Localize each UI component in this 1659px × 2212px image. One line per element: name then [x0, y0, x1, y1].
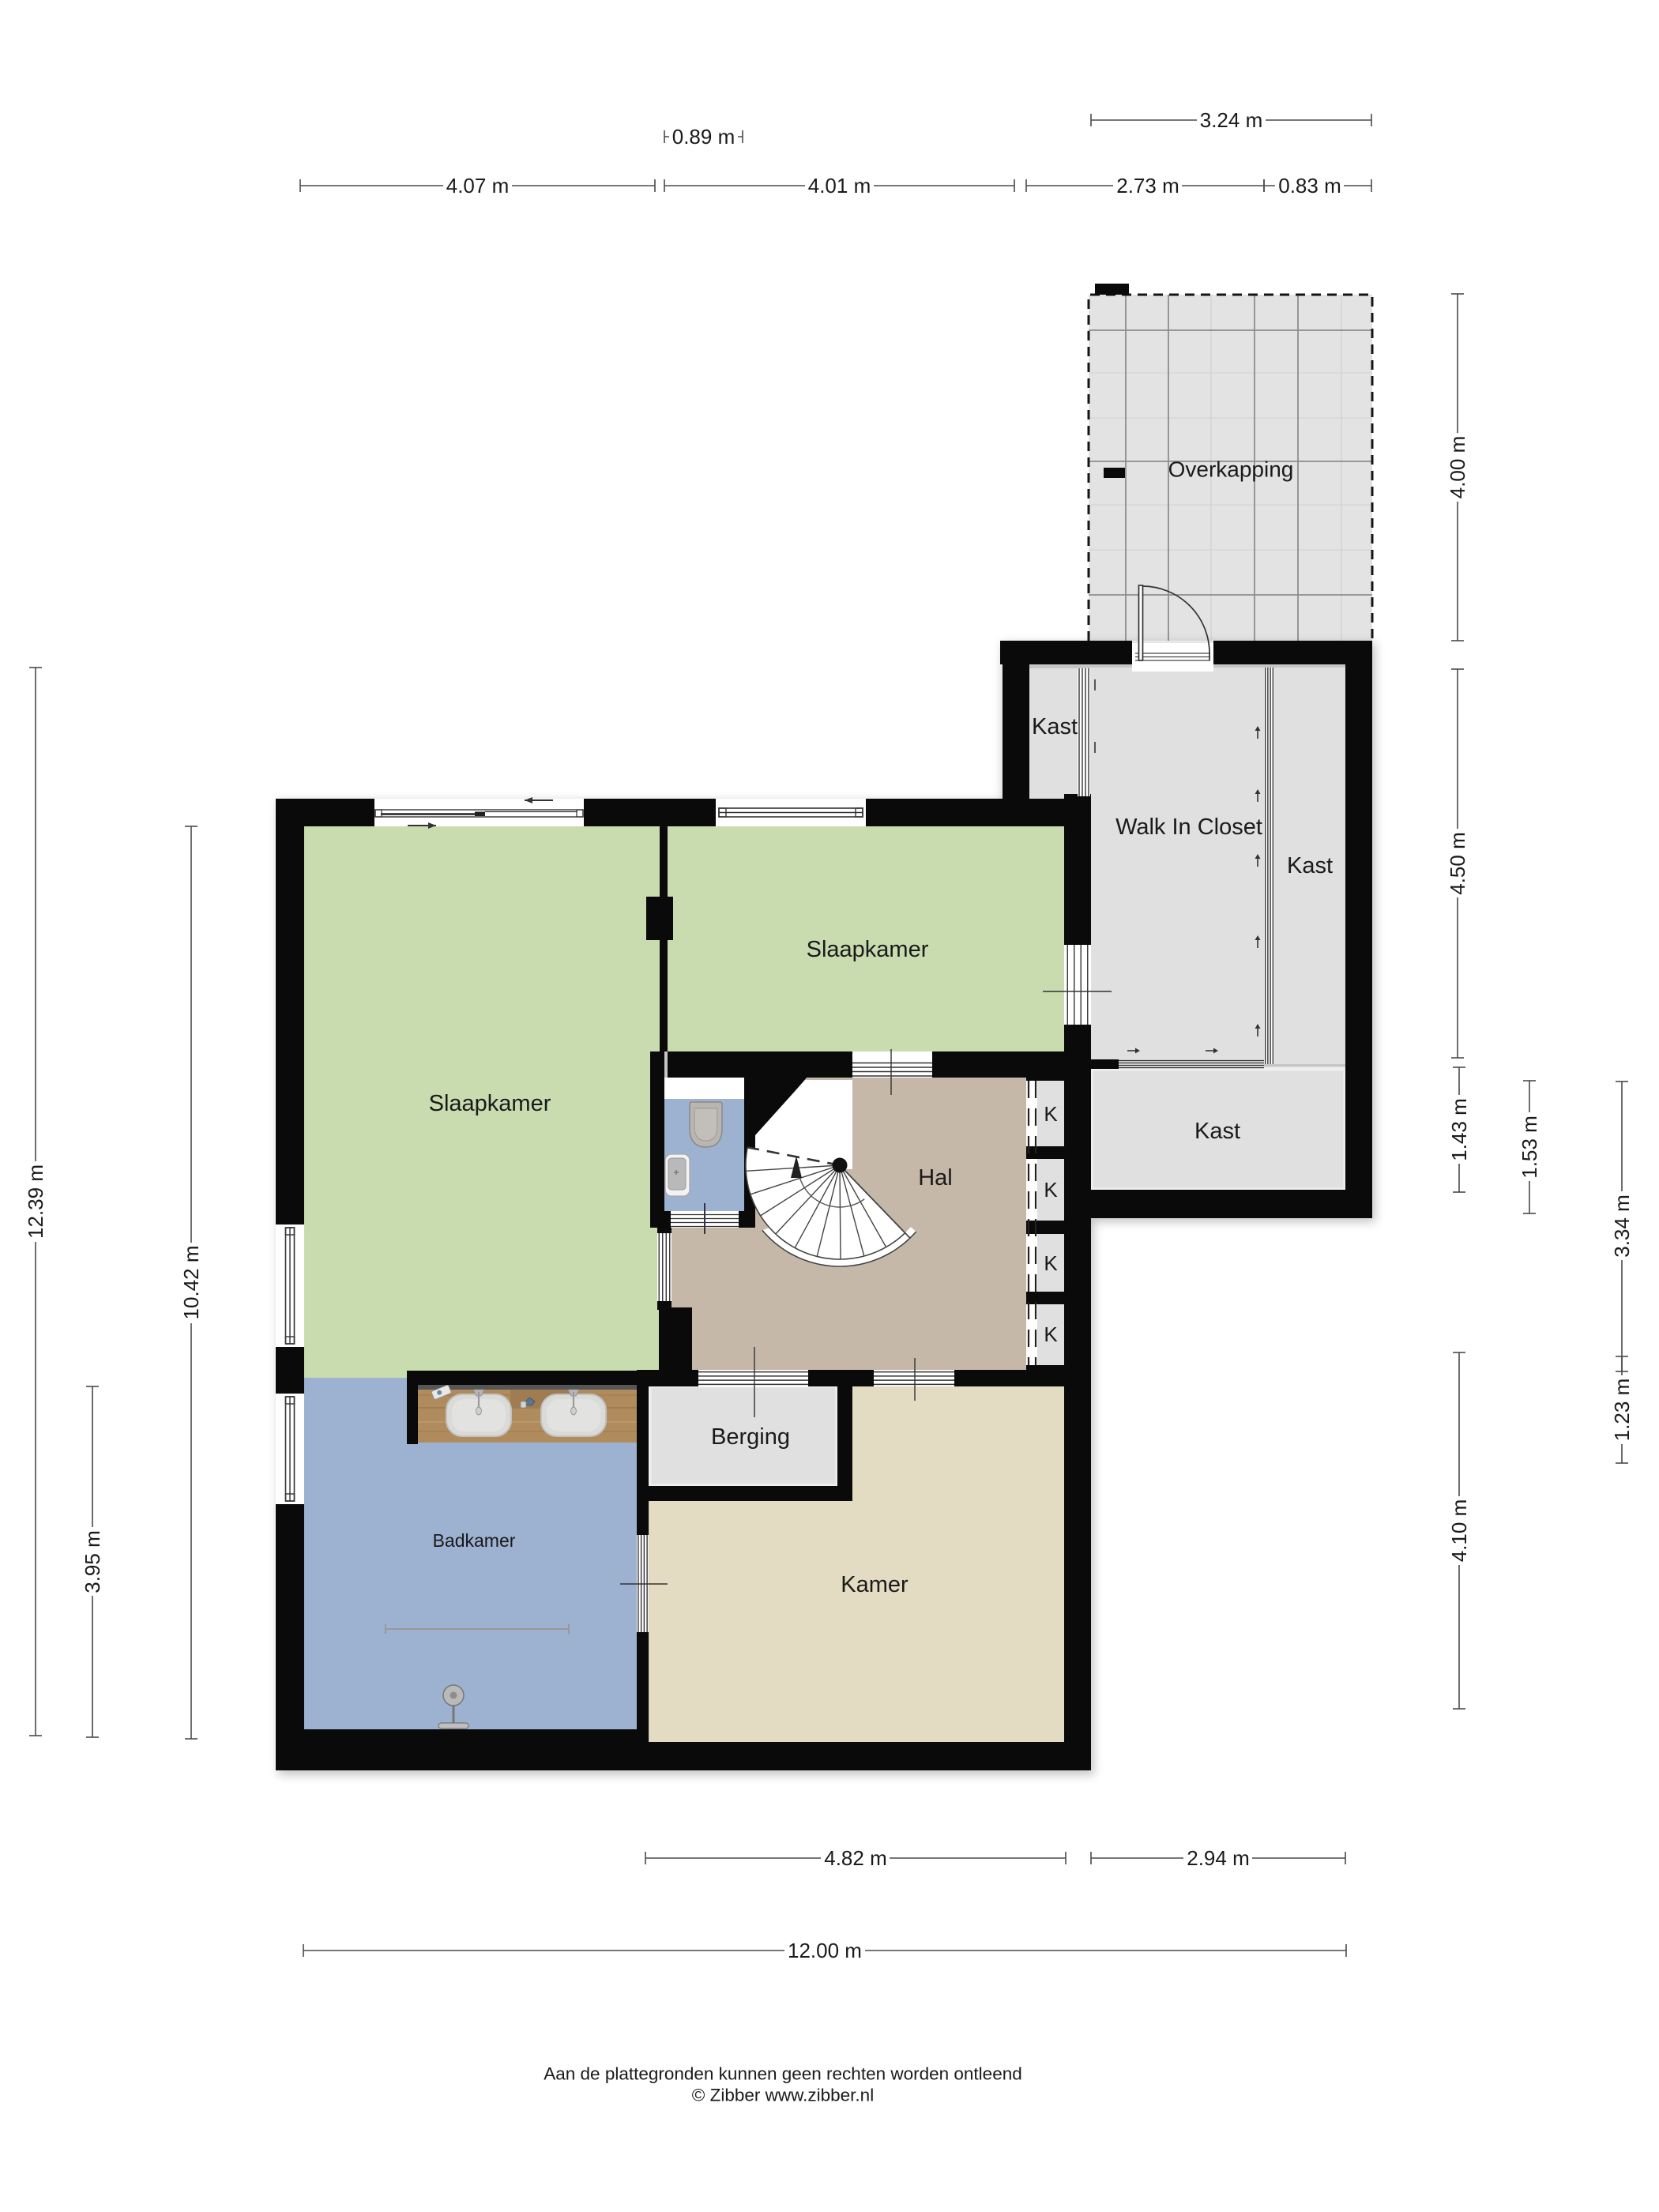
svg-text:4.01 m: 4.01 m — [808, 174, 871, 197]
svg-text:4.50 m: 4.50 m — [1446, 832, 1469, 895]
svg-text:Kast: Kast — [1032, 714, 1078, 739]
svg-text:Kamer: Kamer — [841, 1572, 908, 1597]
svg-text:3.34 m: 3.34 m — [1610, 1194, 1634, 1258]
svg-text:1.53 m: 1.53 m — [1518, 1115, 1541, 1179]
svg-text:4.10 m: 4.10 m — [1447, 1499, 1471, 1563]
svg-text:12.39 m: 12.39 m — [24, 1164, 47, 1239]
svg-text:1.43 m: 1.43 m — [1447, 1098, 1471, 1161]
svg-text:10.42 m: 10.42 m — [179, 1246, 203, 1320]
svg-text:2.94 m: 2.94 m — [1187, 1846, 1250, 1870]
svg-text:© Zibber www.zibber.nl: © Zibber www.zibber.nl — [692, 2086, 874, 2105]
svg-text:K: K — [1044, 1322, 1058, 1346]
svg-text:3.24 m: 3.24 m — [1200, 108, 1263, 132]
svg-text:Walk In Closet: Walk In Closet — [1115, 814, 1262, 840]
svg-text:1.23 m: 1.23 m — [1610, 1379, 1634, 1442]
svg-text:Hal: Hal — [918, 1165, 953, 1191]
svg-text:Berging: Berging — [711, 1424, 790, 1450]
svg-text:12.00 m: 12.00 m — [788, 1939, 862, 1962]
svg-text:K: K — [1044, 1251, 1058, 1275]
svg-text:0.83 m: 0.83 m — [1278, 174, 1341, 197]
svg-text:4.00 m: 4.00 m — [1446, 436, 1469, 499]
svg-text:Slaapkamer: Slaapkamer — [429, 1091, 551, 1116]
svg-text:K: K — [1044, 1102, 1058, 1126]
svg-text:Kast: Kast — [1194, 1119, 1240, 1144]
svg-text:3.95 m: 3.95 m — [81, 1530, 104, 1593]
svg-text:Overkapping: Overkapping — [1168, 457, 1294, 482]
svg-text:4.07 m: 4.07 m — [446, 174, 510, 197]
svg-text:4.82 m: 4.82 m — [824, 1846, 887, 1870]
svg-text:Kast: Kast — [1287, 853, 1333, 878]
svg-text:2.73 m: 2.73 m — [1116, 174, 1179, 197]
svg-text:Slaapkamer: Slaapkamer — [807, 937, 929, 962]
svg-text:Badkamer: Badkamer — [433, 1530, 516, 1551]
svg-text:0.89 m: 0.89 m — [672, 125, 735, 149]
svg-text:K: K — [1044, 1178, 1058, 1202]
svg-text:Aan de plattegronden kunnen ge: Aan de plattegronden kunnen geen rechten… — [544, 2064, 1021, 2084]
